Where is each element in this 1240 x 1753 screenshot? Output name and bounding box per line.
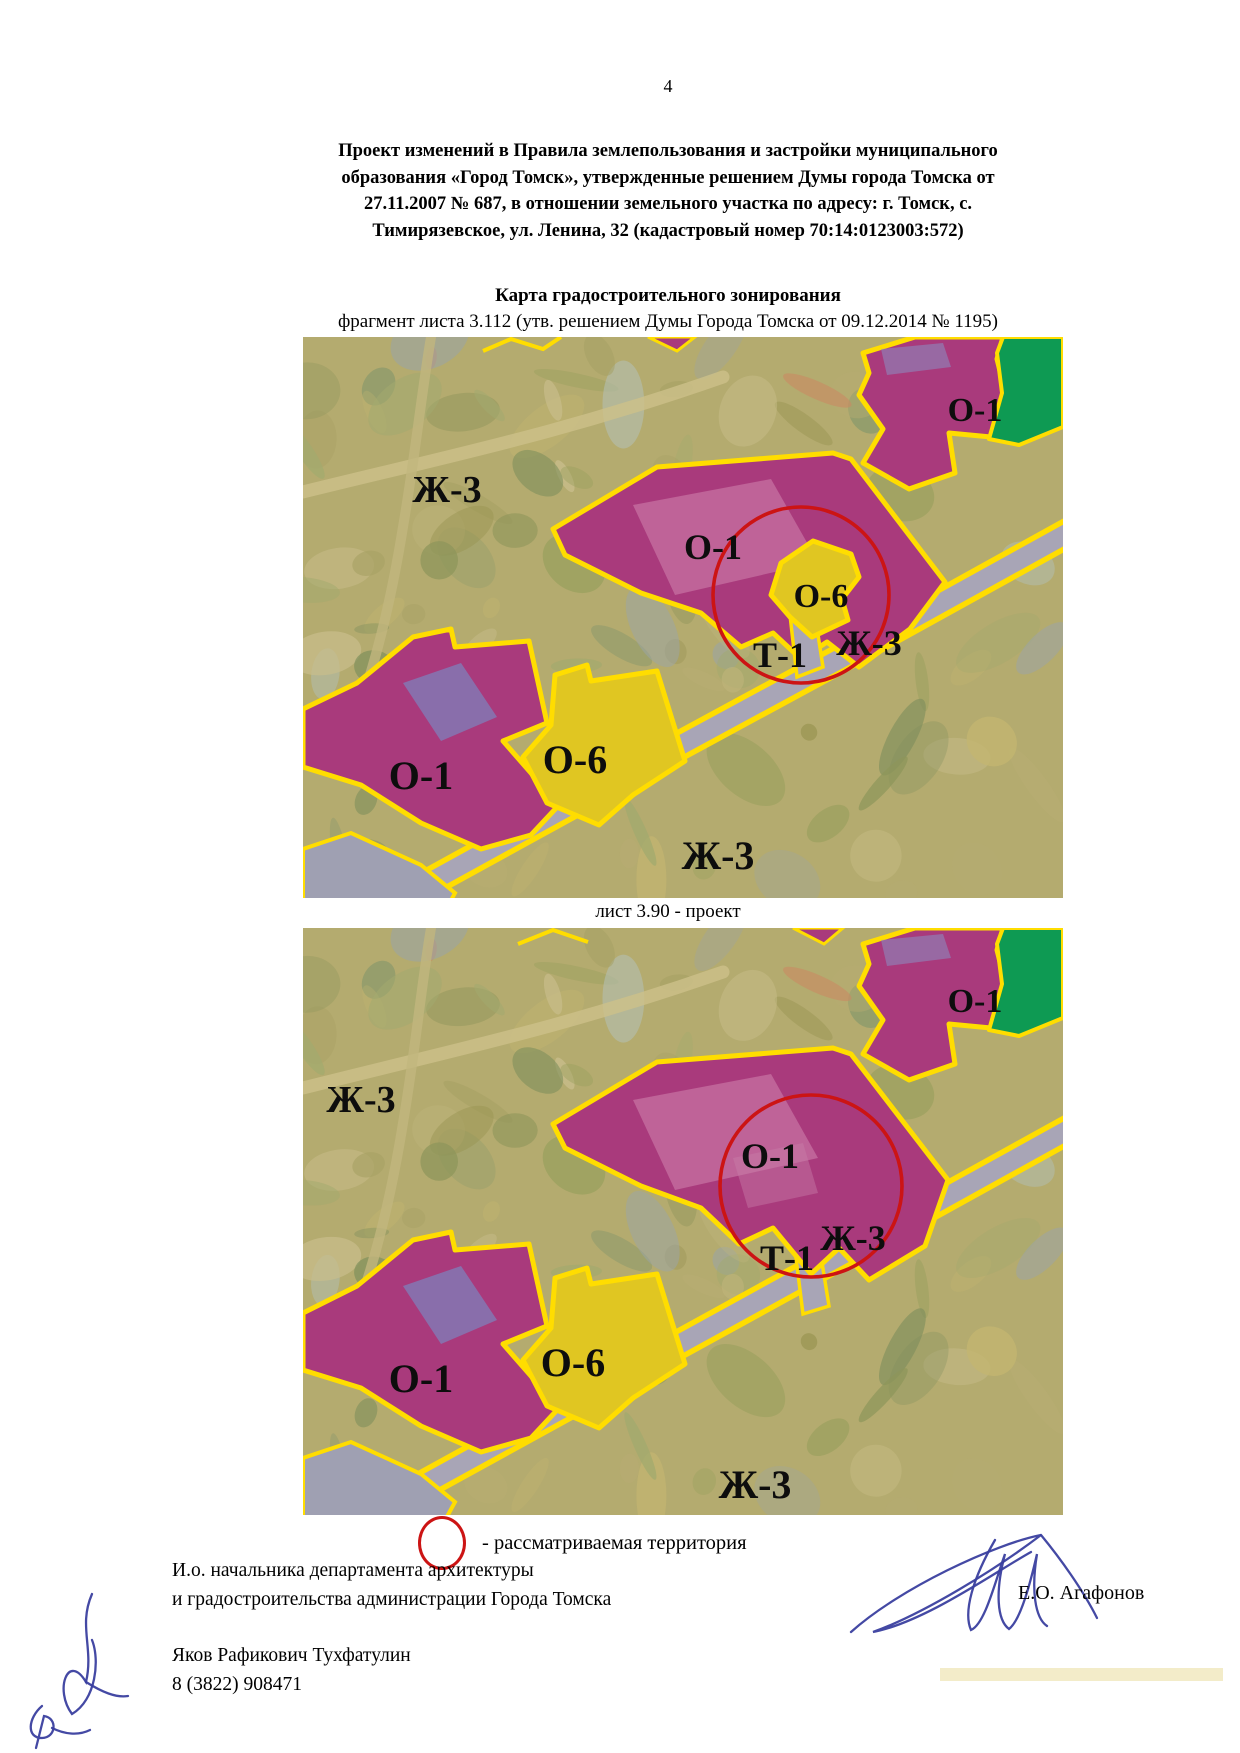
- contact-name: Яков Рафикович Тухфатулин: [172, 1645, 411, 1667]
- zone-label-Ж-3: Ж-3: [412, 469, 481, 511]
- zone-label-Т-1: Т-1: [760, 1238, 814, 1278]
- zone-label-О-6: О-6: [541, 1340, 605, 1385]
- zone-label-Т-1: Т-1: [753, 635, 807, 675]
- zone-label-О-1: О-1: [389, 1356, 453, 1401]
- zone-label-О-6: О-6: [543, 737, 607, 782]
- zone-label-Ж-3: Ж-3: [682, 833, 755, 878]
- signer-name: Е.О. Агафонов: [1018, 1582, 1144, 1605]
- map-existing-caption: фрагмент листа 3.112 (утв. решением Думы…: [96, 311, 1240, 333]
- zone-label-Ж-3: Ж-3: [836, 623, 902, 663]
- contact-phone: 8 (3822) 908471: [172, 1674, 302, 1696]
- signer-position-line1: И.о. начальника департамента архитектуры: [172, 1560, 534, 1582]
- map-section-title: Карта градостроительного зонирования: [96, 285, 1240, 307]
- title-line: Тимирязевское, ул. Ленина, 32 (кадастров…: [96, 218, 1240, 245]
- title-line: образования «Город Томск», утвержденные …: [96, 165, 1240, 192]
- document-title: Проект изменений в Правила землепользова…: [96, 138, 1240, 244]
- zone-label-О-1: О-1: [741, 1136, 799, 1176]
- zone-label-Ж-3: Ж-3: [820, 1218, 886, 1258]
- page-number: 4: [96, 76, 1240, 97]
- zone-label-Ж-3: Ж-3: [719, 1462, 792, 1507]
- zone-label-Ж-3: Ж-3: [326, 1079, 395, 1121]
- zone-label-О-1: О-1: [948, 392, 1003, 429]
- title-line: Проект изменений в Правила землепользова…: [96, 138, 1240, 165]
- map-project-caption: лист 3.90 - проект: [96, 901, 1240, 923]
- signer-position-line2: и градостроительства администрации Город…: [172, 1589, 611, 1611]
- zoning-map-project: Ж-3О-1О-1Т-1Ж-3О-1О-6Ж-3: [303, 928, 1063, 1515]
- zone-label-О-1: О-1: [948, 983, 1003, 1020]
- zone-label-О-1: О-1: [684, 527, 742, 567]
- highlight-bar: [940, 1668, 1223, 1681]
- zoning-map-existing: Ж-3О-1О-1О-6Т-1Ж-3О-1О-6Ж-3: [303, 337, 1063, 898]
- legend-text: - рассматриваемая территория: [482, 1532, 747, 1555]
- title-line: 27.11.2007 № 687, в отношении земельного…: [96, 191, 1240, 218]
- pen-scribble: [12, 1588, 147, 1753]
- zone-label-О-1: О-1: [389, 753, 453, 798]
- zone-label-О-6: О-6: [794, 578, 849, 615]
